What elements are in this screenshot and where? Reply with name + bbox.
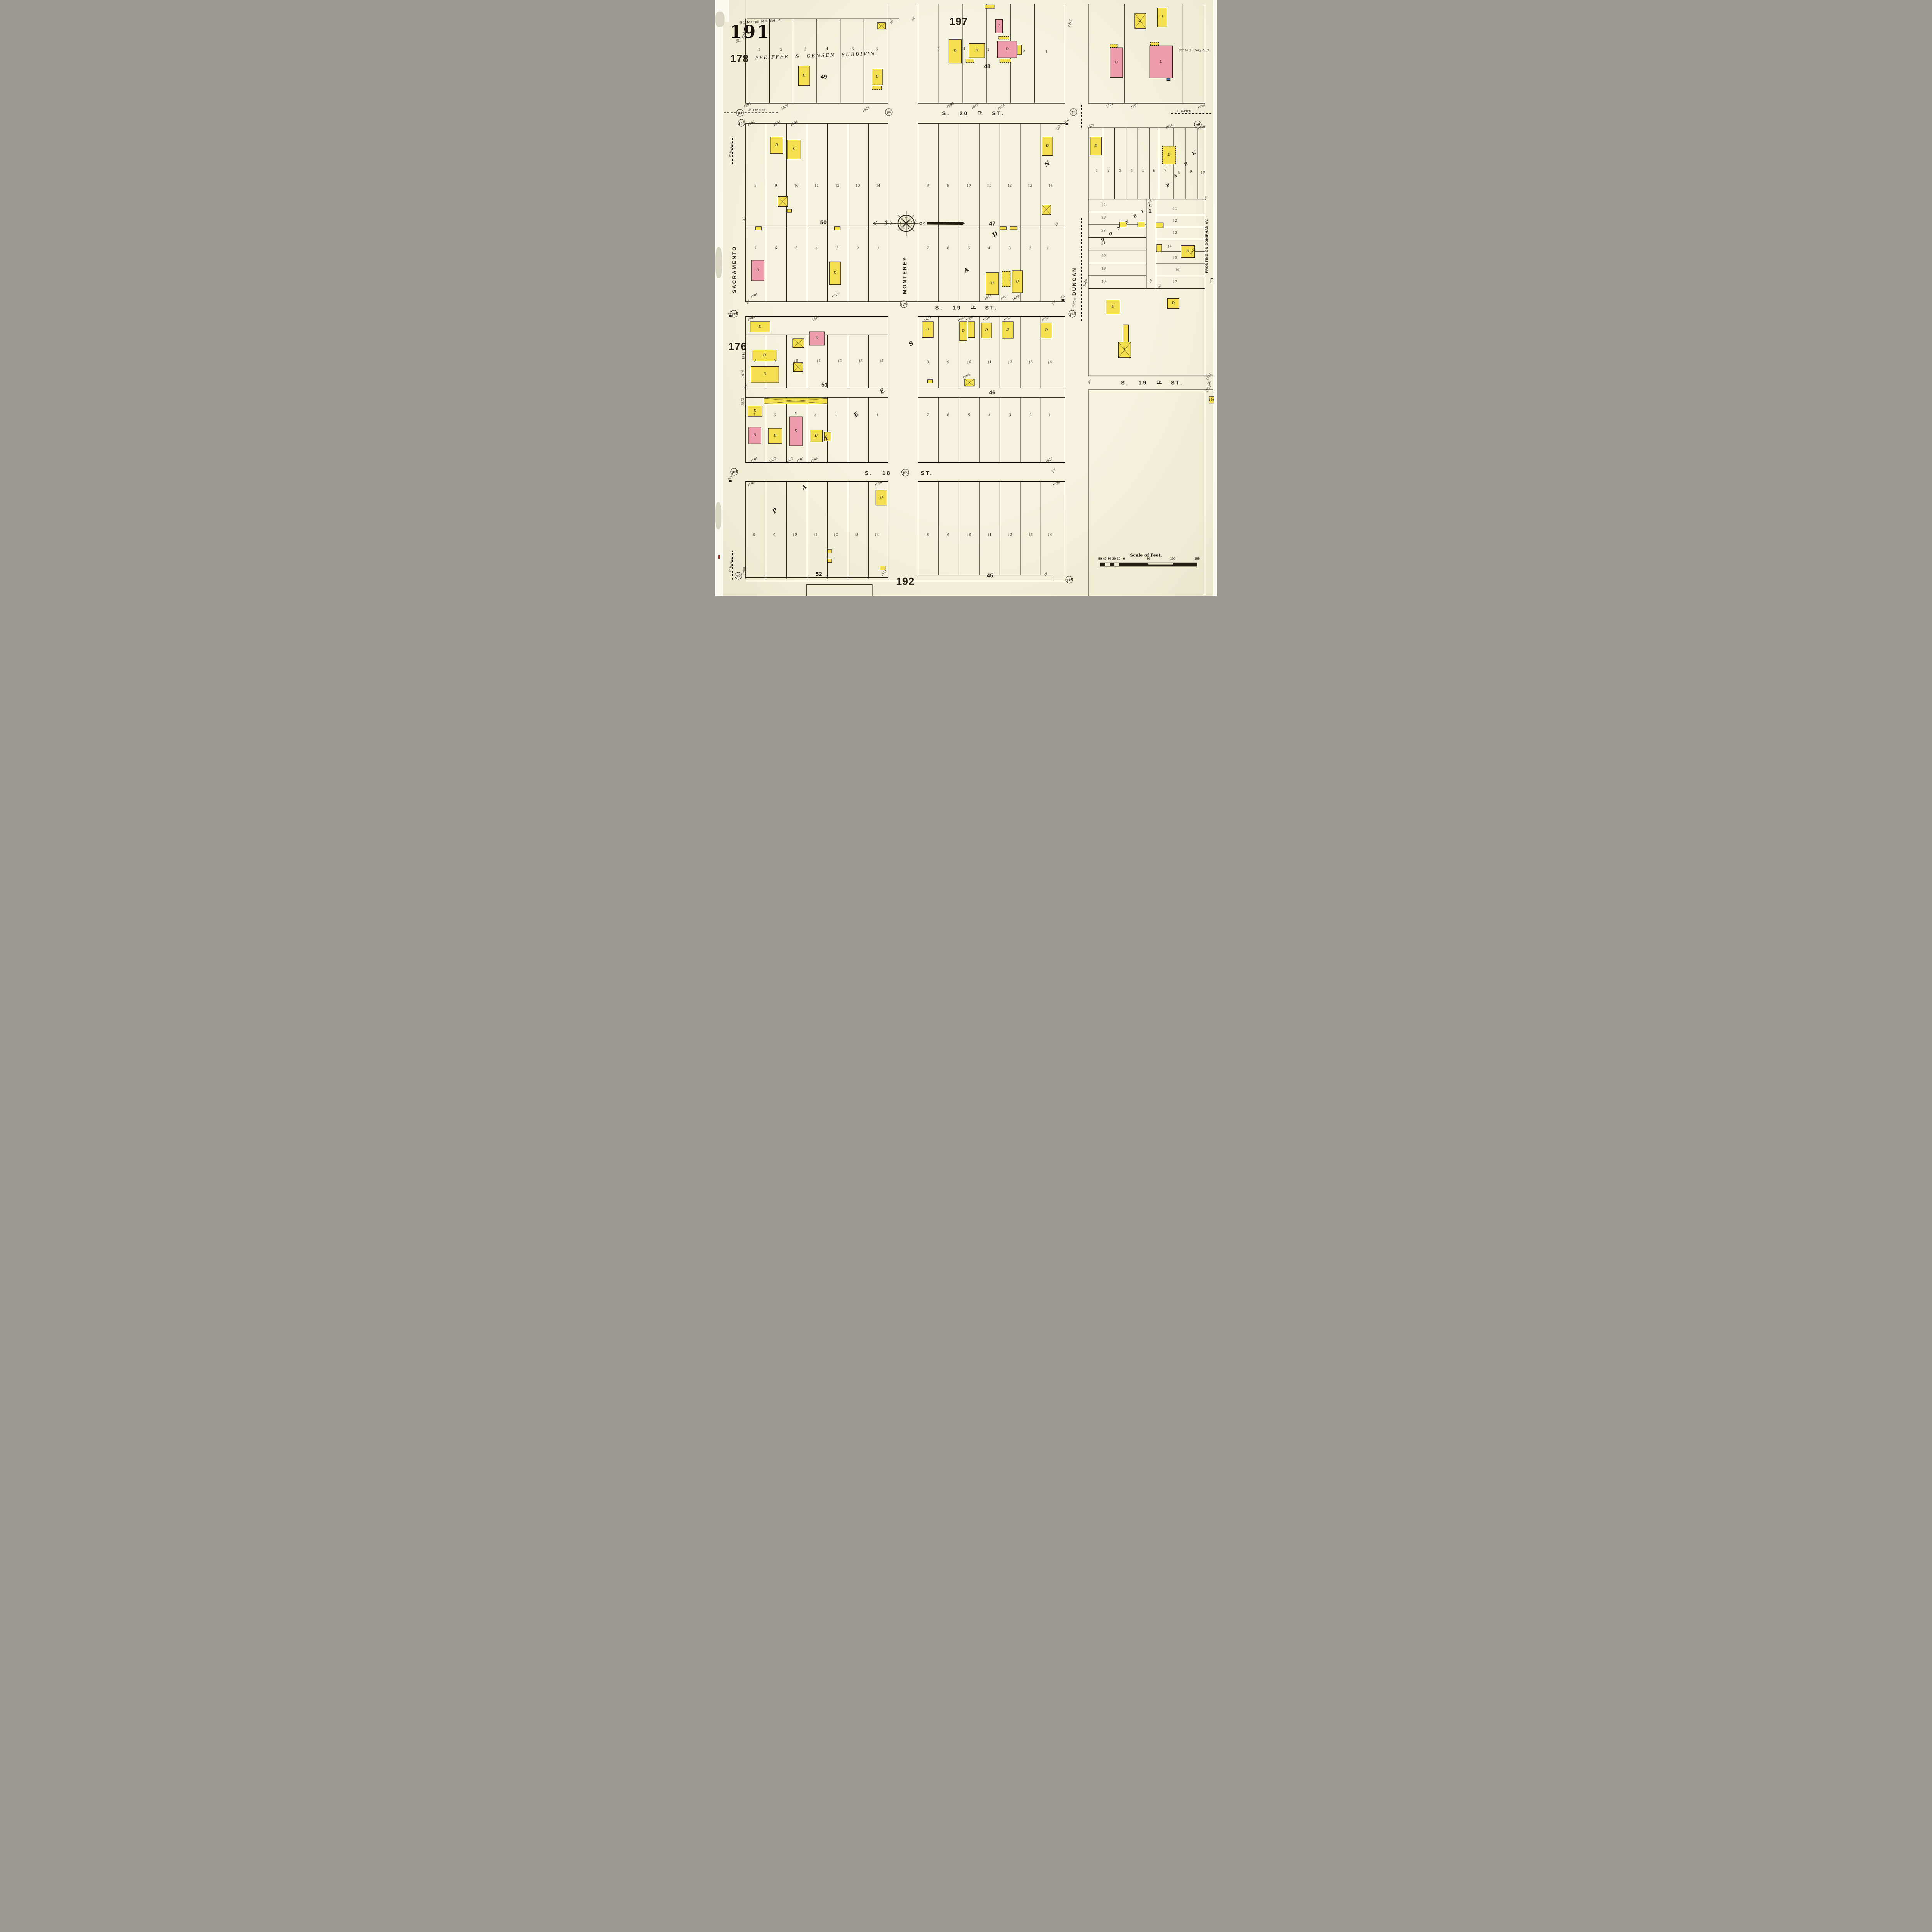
building-footprint: D <box>1012 270 1023 293</box>
lot-number: 5 <box>967 247 970 251</box>
map-line <box>1088 250 1146 250</box>
street-label-part: 20 <box>959 110 969 116</box>
map-line <box>959 123 959 226</box>
lot-number: 5 <box>795 247 798 251</box>
building-footprint: D <box>751 260 764 281</box>
house-number: 2013 <box>1067 19 1073 27</box>
house-number: 1812 <box>741 398 745 406</box>
building-footprint: D <box>810 430 823 442</box>
map-line <box>806 584 807 596</box>
block-number: 48 <box>984 63 991 70</box>
map-line <box>1065 123 1065 301</box>
building-footprint: D <box>876 490 887 505</box>
map-line <box>766 481 766 578</box>
lot-number: 7 <box>926 247 929 251</box>
map-line <box>848 123 848 226</box>
map-line <box>1088 199 1088 288</box>
building-footprint <box>755 226 762 230</box>
map-line <box>1205 199 1205 288</box>
lot-number: 1 <box>758 48 760 52</box>
water-pipe-line <box>1171 113 1213 114</box>
lot-number: 12 <box>1173 219 1178 223</box>
map-line <box>745 103 888 104</box>
water-main-circle: 153 <box>737 118 746 127</box>
map-line <box>1034 4 1035 103</box>
map-line <box>848 397 848 462</box>
dimension-label: 60' <box>746 299 751 304</box>
map-line <box>745 123 888 124</box>
house-number: 1900 <box>1083 279 1088 287</box>
lot-number: 6 <box>774 247 777 251</box>
map-line <box>766 397 766 462</box>
house-number: 1617 <box>1000 294 1009 301</box>
block-number: 47 <box>989 221 996 227</box>
map-line <box>745 123 746 301</box>
building-use-letter: 1½ <box>1209 398 1214 402</box>
scale-bar-segment <box>1119 563 1124 566</box>
building-footprint: D <box>997 41 1017 58</box>
building-footprint: D <box>986 272 999 295</box>
paper-stain <box>715 247 722 278</box>
map-line <box>1088 276 1146 276</box>
lot-number: 12 <box>837 359 842 363</box>
addition-letter: N <box>1043 160 1051 168</box>
building-footprint <box>1000 59 1011 63</box>
map-line <box>766 226 766 301</box>
street-label: DUNCAN <box>1071 267 1077 296</box>
map-line <box>840 19 840 103</box>
map-line <box>979 481 980 575</box>
lot-number: 11 <box>813 533 818 537</box>
building-footprint <box>787 209 792 213</box>
scale-tick-label: 50 <box>1147 557 1150 561</box>
map-line <box>1000 481 1000 575</box>
water-pipe-line <box>1081 103 1082 128</box>
map-line <box>888 316 888 462</box>
water-main-circle: 114 <box>1065 575 1073 584</box>
building-use-letter: D <box>759 325 761 329</box>
map-line <box>1138 128 1138 199</box>
street-label-part: ST. <box>992 110 1004 116</box>
map-line <box>1000 316 1000 388</box>
map-line <box>1182 4 1182 103</box>
map-line <box>827 481 828 578</box>
map-line <box>1041 481 1041 575</box>
lot-number: 9 <box>773 359 776 364</box>
addition-letter: K <box>1191 150 1197 156</box>
addition-letter: E <box>852 410 860 418</box>
building-use-letter: D <box>794 430 797 433</box>
building-footprint: D <box>809 332 825 345</box>
house-number: 1501 <box>743 102 752 109</box>
map-line <box>1197 128 1197 199</box>
lot-number: 5 <box>1142 169 1145 173</box>
building-use-letter: D <box>926 328 929 332</box>
lot-number: 11 <box>987 184 992 188</box>
lot-number: 1 <box>1095 169 1098 173</box>
lot-number: 10 <box>967 533 972 537</box>
block-number: 1 <box>1148 208 1151 214</box>
building-footprint <box>827 559 832 563</box>
map-line <box>868 335 869 388</box>
lot-number: 2 <box>1029 413 1032 418</box>
water-pipe-line <box>1081 216 1082 321</box>
water-pipe-line <box>724 112 779 113</box>
building-footprint: D <box>1106 300 1120 314</box>
lot-number: 12 <box>833 533 838 537</box>
scale-tick-label: 150 <box>1194 557 1199 561</box>
utility-marker: D.H. <box>1065 123 1068 125</box>
building-use-letter: D <box>775 144 778 147</box>
street-label-part: 18 <box>882 470 891 476</box>
map-line <box>918 123 1065 124</box>
addition-letter: L <box>1141 209 1145 214</box>
map-line <box>745 226 888 226</box>
building-use-letter: D <box>876 75 878 79</box>
house-number: 1902 <box>1087 123 1095 130</box>
map-line <box>806 584 872 585</box>
building-footprint: D <box>787 140 801 159</box>
map-line <box>827 397 828 462</box>
building-use-letter: D <box>1172 302 1175 305</box>
building-use-letter: 1 <box>1124 348 1126 352</box>
lot-number: 14 <box>879 359 884 363</box>
house-number: 1506 <box>790 120 798 127</box>
lot-number: 8 <box>1178 171 1180 175</box>
map-line <box>816 19 817 103</box>
lot-number: 19 <box>1101 267 1106 271</box>
addition-letter: P <box>1165 182 1171 188</box>
house-number: 1626 <box>1056 122 1063 131</box>
lot-number: 8 <box>754 184 757 188</box>
adjacent-sheet-number: 176 <box>728 341 747 353</box>
lot-number: 3 <box>986 48 989 53</box>
map-line <box>745 481 888 482</box>
map-line <box>888 123 888 301</box>
lot-number: 13 <box>858 359 863 363</box>
scale-tick-label: 100 <box>1170 557 1175 561</box>
lot-number: 12 <box>1008 533 1013 537</box>
map-line <box>1156 199 1156 288</box>
lot-number: 2 <box>780 48 782 52</box>
street-label-part: S. <box>865 470 873 476</box>
map-line <box>918 316 918 462</box>
dimension-label: 60' <box>911 16 916 21</box>
map-line <box>868 123 869 226</box>
building-footprint <box>968 321 975 338</box>
building-footprint <box>985 5 995 9</box>
building-footprint <box>827 549 832 553</box>
map-line <box>1146 199 1146 288</box>
map-line <box>1088 389 1213 390</box>
lot-number: 9 <box>947 184 949 188</box>
building-footprint: D <box>829 262 841 285</box>
building-footprint: D <box>969 43 985 58</box>
building-use-letter: D <box>756 269 759 272</box>
building-use-letter: D <box>753 434 756 437</box>
utility-marker: D.H. <box>729 315 732 317</box>
map-line <box>1041 397 1041 462</box>
scale-tick-label: 10 <box>1117 557 1121 561</box>
map-line <box>827 335 828 388</box>
block-number: 45 <box>987 573 993 579</box>
paper-stain <box>715 12 724 27</box>
building-footprint: D <box>922 321 934 338</box>
map-line <box>868 397 869 462</box>
map-line <box>979 226 980 301</box>
map-line <box>1020 316 1020 388</box>
map-line <box>745 397 888 398</box>
lot-number: 4 <box>826 47 828 51</box>
street-label: ST. <box>921 470 933 476</box>
building-footprint: D <box>789 417 803 446</box>
map-line <box>938 226 939 301</box>
lot-number: 6 <box>1153 169 1155 173</box>
addition-letter: E <box>1133 214 1138 219</box>
lot-number: 12 <box>1007 184 1012 188</box>
lot-number: 1 <box>1046 247 1049 251</box>
building-footprint: D <box>768 428 782 444</box>
map-line <box>1088 128 1205 128</box>
lot-number: 9 <box>947 361 949 365</box>
lot-number: 4 <box>988 413 991 418</box>
street-label-part: S. <box>1121 379 1129 386</box>
building-footprint <box>1138 222 1145 227</box>
map-line <box>918 388 1065 388</box>
building-use-letter: D <box>774 434 776 438</box>
building-footprint: 2 <box>1134 13 1146 29</box>
map-line <box>827 123 828 226</box>
map-line <box>786 226 787 301</box>
lot-number: 13 <box>1173 231 1178 235</box>
map-line <box>938 316 939 388</box>
lot-number: 11 <box>987 533 992 537</box>
building-footprint <box>1150 42 1159 46</box>
street-label-part: 19 <box>952 304 962 311</box>
lot-number: 9 <box>774 184 777 188</box>
building-footprint <box>793 362 803 372</box>
building-use-letter: D <box>803 74 805 78</box>
map-line <box>939 4 939 103</box>
house-number: 1501 <box>750 292 759 299</box>
water-main-circle: 158 <box>1068 309 1077 318</box>
building-footprint <box>1010 226 1017 230</box>
building-footprint <box>1002 271 1010 287</box>
lot-number: 8 <box>926 361 929 365</box>
building-use-letter: D <box>991 282 993 286</box>
map-line <box>1065 316 1065 462</box>
map-line <box>1205 288 1205 376</box>
map-line <box>1088 389 1088 596</box>
lot-number: 4 <box>814 413 817 418</box>
map-line <box>807 226 807 301</box>
lot-number: 6 <box>875 48 878 52</box>
map-line <box>986 4 987 103</box>
house-number: 1625 <box>997 104 1005 111</box>
edge-mark <box>718 555 720 559</box>
house-number: 1619 <box>1012 294 1020 301</box>
house-number: 1729 <box>1197 103 1206 110</box>
map-line <box>1156 264 1205 264</box>
map-line <box>807 397 807 462</box>
building-footprint: D <box>1090 137 1102 155</box>
house-number: 1814 <box>742 370 745 378</box>
lot-number: 2 <box>856 247 859 251</box>
map-line <box>959 316 959 388</box>
map-line <box>747 19 899 19</box>
map-line <box>1088 288 1088 376</box>
paper-stain <box>715 502 721 529</box>
utility-marker-label: D.H. <box>727 475 734 481</box>
lot-number: 15 <box>1173 256 1178 260</box>
building-footprint: D <box>1150 46 1173 78</box>
map-line <box>959 397 959 462</box>
building-use-letter: D <box>1168 153 1170 157</box>
lot-number: 10 <box>966 184 971 188</box>
addition-letter: R <box>1183 161 1189 167</box>
map-line <box>938 397 939 462</box>
addition-letter: D <box>991 230 999 238</box>
lot-number: 6 <box>947 247 949 251</box>
water-main-circle: 104 <box>730 467 738 476</box>
map-line <box>868 226 869 301</box>
lot-number: 2 <box>1022 49 1025 54</box>
lot-number: 20 <box>1101 254 1106 258</box>
building-footprint: D <box>1002 321 1014 338</box>
lot-number: 10 <box>1201 170 1206 175</box>
lot-number: 3 <box>1119 169 1121 173</box>
block-number: 50 <box>820 219 827 226</box>
street-label: S. 19 TH ST. <box>1121 379 1183 386</box>
lot-number: 17 <box>1173 280 1178 284</box>
building-footprint: D <box>959 321 967 341</box>
lot-number: 11 <box>987 360 992 364</box>
utility-label: 6″ W.PIPE <box>1070 297 1077 312</box>
map-line <box>1159 128 1159 199</box>
building-footprint <box>966 59 974 63</box>
map-line <box>1124 4 1125 103</box>
street-label-part: ST. <box>1171 379 1183 386</box>
building-use-letter: D <box>763 354 766 357</box>
house-number: 1914 <box>1165 123 1173 130</box>
street-label-part: ST. <box>985 304 997 311</box>
map-line <box>1088 212 1146 212</box>
dimension-label: 20' <box>1204 195 1209 200</box>
building-footprint: D <box>1041 323 1052 338</box>
lot-number: 16 <box>1175 268 1180 272</box>
lot-number: 10 <box>794 184 799 188</box>
lot-number: 8 <box>752 533 755 537</box>
building-use-letter: D <box>815 337 818 340</box>
utility-label: 6″ W.PIPE <box>728 558 734 572</box>
utility-marker-label: D.H. <box>1064 118 1070 124</box>
building-use-letter: D <box>1016 280 1019 284</box>
lot-number: 14 <box>876 184 881 188</box>
lot-number: 6 <box>947 413 949 418</box>
sheet-number: 191 <box>730 21 770 42</box>
map-line <box>918 123 918 301</box>
utility-label: 8″ W.PIPE <box>728 143 734 157</box>
building-footprint <box>778 196 788 207</box>
lot-number: 12 <box>835 184 840 188</box>
street-label-part: TH <box>1157 380 1162 384</box>
building-use-letter: D <box>985 329 988 332</box>
map-line <box>1000 123 1000 226</box>
map-line <box>1088 4 1088 103</box>
scale-bar-segment <box>1110 563 1114 566</box>
map-line <box>793 19 793 103</box>
map-line <box>918 316 1065 317</box>
building-use-letter: D <box>753 410 756 413</box>
lot-number: 7 <box>926 413 929 418</box>
water-main-circle: 73 <box>1069 107 1078 116</box>
map-line <box>745 462 888 463</box>
dimension-label: 60' <box>1052 300 1057 305</box>
building-footprint <box>927 379 933 383</box>
map-line <box>1020 397 1020 462</box>
map-line <box>807 123 807 226</box>
addition-letter: S <box>907 340 915 348</box>
lot-number: 7 <box>753 413 755 418</box>
map-line <box>979 316 980 388</box>
lot-number: 7 <box>1164 169 1167 173</box>
lot-number: 1 <box>877 247 879 251</box>
sanborn-map-sheet: St. Joseph Mo. Vol. 2. 191 PFEIFFER & GE… <box>715 0 1217 596</box>
map-line <box>1149 128 1150 199</box>
dimension-label: 20' <box>742 217 747 222</box>
map-line <box>1088 237 1146 238</box>
map-line <box>807 335 807 388</box>
lot-number: 5 <box>968 413 970 418</box>
building-footprint <box>834 226 840 230</box>
map-line <box>918 481 1065 482</box>
street-label-part: ST. <box>921 470 933 476</box>
map-line <box>1205 389 1205 596</box>
map-line <box>766 123 766 226</box>
building-footprint: D <box>751 366 779 383</box>
building-footprint: D <box>770 137 783 154</box>
map-line <box>938 123 939 226</box>
building-use-letter: D <box>962 330 964 333</box>
map-line <box>769 19 770 103</box>
lot-number: 5 <box>794 412 797 417</box>
street-label-part: S. <box>942 110 950 116</box>
map-line <box>1088 263 1146 263</box>
scale-tick-label: 0 <box>1123 557 1125 561</box>
addition-letter: O <box>1108 231 1113 237</box>
block-number: 52 <box>816 571 822 578</box>
map-line <box>1088 128 1088 199</box>
map-line <box>1088 199 1205 199</box>
map-line <box>1156 251 1205 252</box>
lot-number: 11 <box>1173 207 1178 211</box>
lot-number: 8 <box>754 359 757 364</box>
building-footprint: D <box>748 427 761 444</box>
lot-number: 13 <box>855 184 861 188</box>
lot-number: 4 <box>988 247 990 251</box>
building-footprint: D <box>949 39 962 63</box>
building-use-letter: D <box>1094 145 1097 148</box>
lot-number: 13 <box>854 533 859 537</box>
house-number: 1723 <box>1205 384 1212 393</box>
map-line <box>1000 226 1000 301</box>
street-label: S. 18 TH <box>865 470 905 476</box>
map-line <box>918 462 1065 463</box>
lot-number: 55' <box>735 38 742 44</box>
lot-number: 2 <box>1029 247 1031 251</box>
map-line <box>959 226 959 301</box>
lot-number: 11 <box>816 359 821 363</box>
